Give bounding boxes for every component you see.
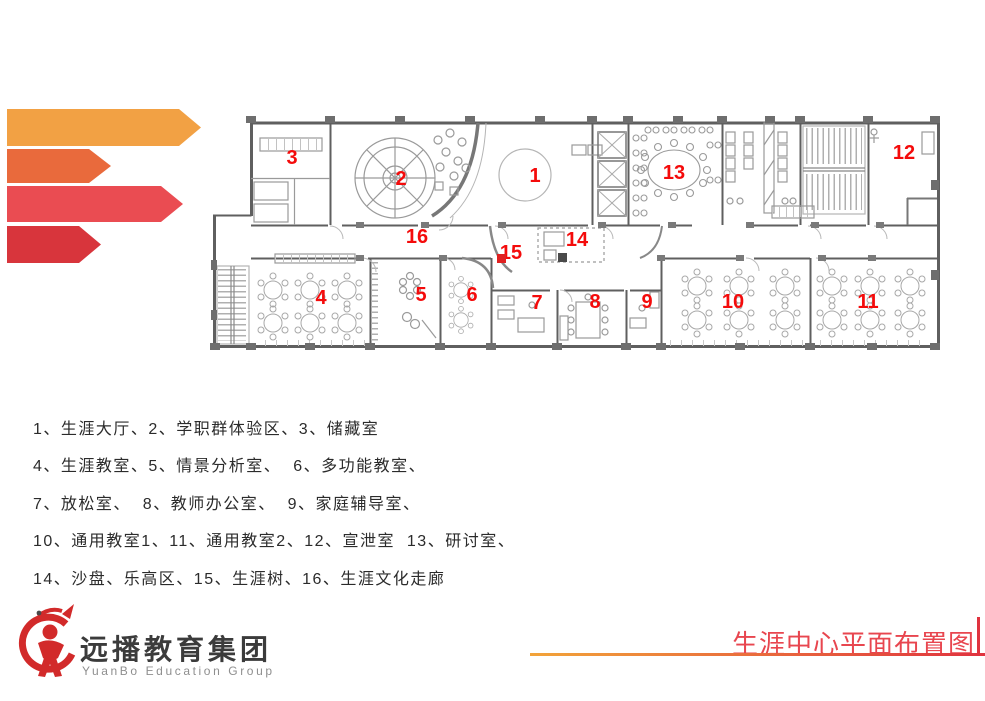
title-underline	[530, 653, 985, 656]
floor-plan-drawing	[210, 20, 945, 360]
legend-line-1: 1、生涯大厅、2、学职群体验区、3、储藏室	[33, 415, 379, 439]
room-label-5: 5	[415, 285, 426, 305]
legend-line-3: 7、放松室、 8、教师办公室、 9、家庭辅导室、	[33, 490, 420, 514]
legend-line-4: 10、通用教室1、11、通用教室2、12、宣泄室 13、研讨室、	[33, 527, 515, 551]
room-label-16: 16	[406, 227, 428, 247]
room-label-10: 10	[722, 292, 744, 312]
page: { "ribbons": [ {"name": "ribbon-1", "col…	[0, 0, 985, 701]
sand-table-marker	[558, 253, 567, 262]
ribbon-2	[7, 149, 111, 183]
room-label-3: 3	[286, 148, 297, 168]
floor-plan: 12345678910111213141516	[210, 20, 945, 360]
company-logo: 远播教育集团 YuanBo Education Group	[14, 602, 314, 694]
logo-emblem-icon	[14, 602, 80, 690]
room-label-8: 8	[589, 292, 600, 312]
career-tree-marker	[497, 254, 506, 263]
legend-line-2: 4、生涯教室、5、情景分析室、 6、多功能教室、	[33, 452, 426, 476]
logo-name-en: YuanBo Education Group	[82, 664, 275, 678]
ribbon-1	[7, 109, 201, 146]
room-label-1: 1	[529, 166, 540, 186]
logo-name-cn: 远播教育集团	[80, 628, 272, 668]
legend-line-5: 14、沙盘、乐高区、15、生涯树、16、生涯文化走廊	[33, 565, 445, 589]
room-label-13: 13	[663, 163, 685, 183]
title-edge-tick	[977, 617, 980, 656]
ribbon-3	[7, 186, 183, 222]
room-label-2: 2	[395, 169, 406, 189]
room-label-14: 14	[566, 230, 588, 250]
ribbon-4	[7, 226, 101, 263]
room-label-7: 7	[531, 293, 542, 313]
room-label-11: 11	[857, 292, 878, 312]
room-label-6: 6	[466, 285, 477, 305]
room-label-4: 4	[315, 288, 326, 308]
room-label-9: 9	[641, 292, 652, 312]
room-label-12: 12	[893, 143, 915, 163]
